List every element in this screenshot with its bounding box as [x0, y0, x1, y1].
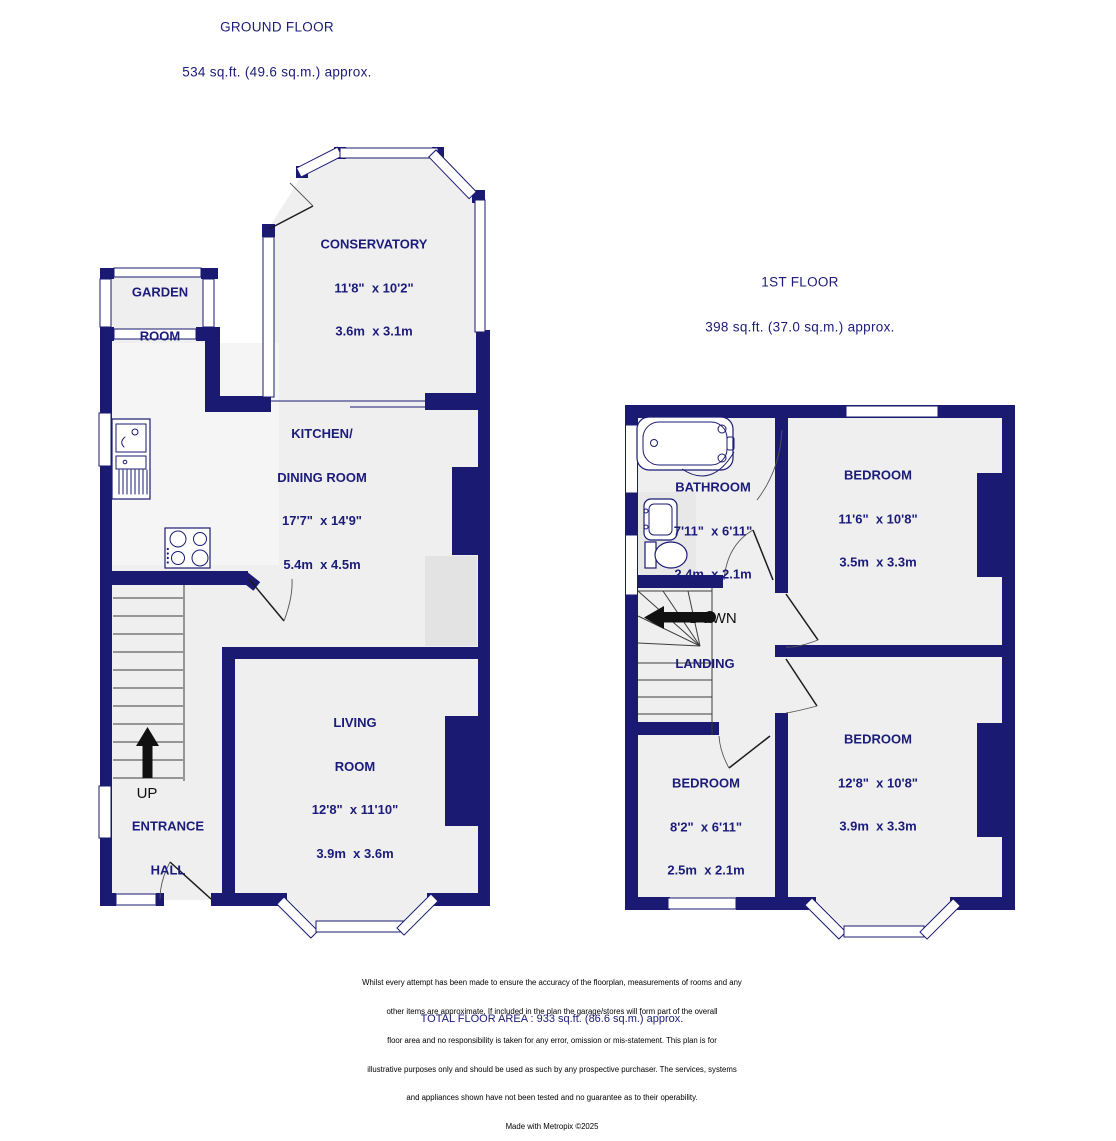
garden-room-window-left [100, 279, 111, 327]
ground-floor-title-name: GROUND FLOOR [182, 20, 371, 35]
room-label-bedroom-small: BEDROOM 8'2" x 6'11" 2.5m x 2.1m [667, 748, 744, 893]
floorplan-canvas: UP [0, 0, 1116, 1080]
kitchen-stair-wall [100, 571, 248, 585]
landing-window [626, 535, 638, 595]
ground-floor-title-area: 534 sq.ft. (49.6 sq.m.) approx. [182, 65, 371, 80]
living-chimney-breast [445, 716, 478, 826]
hall-window-front [116, 894, 156, 905]
conservatory-window-top [340, 148, 438, 158]
bedroom-small-window [668, 898, 736, 909]
floorplan-page: UP [0, 0, 1116, 1080]
living-room-top-wall [222, 647, 478, 659]
bedroom-front-chimney [977, 473, 1015, 577]
room-label-entrance-hall: ENTRANCE HALL [132, 790, 204, 892]
bedroom-front-window [846, 406, 938, 417]
landing-bottom-wall [625, 722, 719, 735]
room-label-conservatory: CONSERVATORY 11'8" x 10'2" 3.6m x 3.1m [321, 209, 428, 354]
metropix-credit: Made with Metropix ©2025 [362, 1122, 742, 1132]
kitchen-sink-unit [112, 419, 150, 499]
room-label-landing: LANDING [675, 628, 734, 686]
hall-window-side [99, 786, 111, 838]
bedroom-back-chimney [977, 723, 1015, 837]
first-floor-title-area: 398 sq.ft. (37.0 sq.m.) approx. [705, 320, 894, 335]
room-label-bedroom-front: BEDROOM 11'6" x 10'8" 3.5m x 3.3m [838, 440, 917, 585]
room-label-kitchen: KITCHEN/ DINING ROOM 17'7" x 14'9" 5.4m … [277, 398, 367, 587]
first-floor-title-name: 1ST FLOOR [705, 275, 894, 290]
kitchen-hob [165, 528, 210, 568]
garden-room-window-right [203, 279, 214, 327]
conservatory-window-right [475, 200, 485, 332]
room-label-bathroom: BATHROOM 7'11" x 6'11" 2.4m x 2.1m [674, 452, 753, 597]
disclaimer: Whilst every attempt has been made to en… [362, 959, 742, 1141]
bathroom-window [626, 425, 638, 493]
kitchen-window [99, 413, 111, 466]
bay-window-front [316, 921, 404, 932]
kitchen-chimney-breast [452, 467, 478, 555]
first-floor-title: 1ST FLOOR 398 sq.ft. (37.0 sq.m.) approx… [705, 245, 894, 350]
room-label-living-room: LIVING ROOM 12'8" x 11'10" 3.9m x 3.6m [312, 687, 398, 876]
ground-floor-title: GROUND FLOOR 534 sq.ft. (49.6 sq.m.) app… [182, 0, 371, 95]
bathroom-sink [644, 499, 677, 540]
room-label-garden-room: GARDEN ROOM [132, 256, 188, 358]
conservatory-window-left [263, 237, 274, 397]
hall-living-wall [222, 647, 235, 893]
room-label-bedroom-back: BEDROOM 12'8" x 10'8" 3.9m x 3.3m [838, 704, 918, 849]
kitchen-alcove-shade [425, 556, 477, 646]
bedroom-front-bottom-wall [775, 645, 1015, 657]
bedroom-bay-window-front [844, 926, 924, 937]
bedroom-divider-wall [775, 713, 788, 910]
